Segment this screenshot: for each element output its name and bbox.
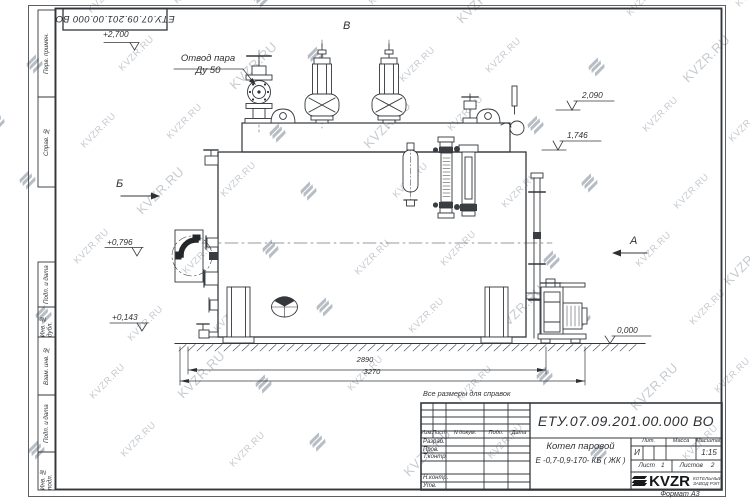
manhole: [272, 296, 298, 317]
elevation-label-1746: 1,746: [567, 131, 588, 139]
frame-cell-inv-podl: Инв. № подл.: [38, 452, 55, 490]
frame-cell-inv-dubl: Инв. № дубл.: [38, 307, 55, 337]
manometer-siphon: [501, 86, 524, 135]
titleblock-col-list: Лист: [433, 430, 446, 438]
elevation-label-2090: 2,090: [582, 91, 603, 99]
view-label-v: В: [343, 21, 350, 32]
top-fitting: [462, 94, 478, 123]
safety-valve-2: [372, 40, 406, 128]
titleblock-lit-header: Лит.: [631, 438, 666, 446]
elevation-label-0143: +0,143: [112, 313, 138, 321]
stamp-doc-number: ЕТУ.07.09.201.00.000 ВО: [63, 8, 167, 29]
dimension-label-2890: 2890: [345, 356, 385, 364]
titleblock-product-title: Котел паровой: [532, 440, 629, 454]
dimension-3270: [180, 347, 585, 385]
kvzr-logo-icon: [633, 475, 646, 488]
kvzr-logo-subtext: КОТЕЛЬНЫЙ ЗАВОД РЭП: [693, 476, 722, 487]
view-arrows: [121, 193, 647, 257]
kvzr-logo: KVZR КОТЕЛЬНЫЙ ЗАВОД РЭП: [633, 472, 722, 490]
safety-valve-1: [305, 40, 339, 128]
format-note: Формат А3: [640, 490, 720, 498]
feed-pump: [526, 279, 587, 343]
titleblock-scale-header: Масштаб: [696, 438, 722, 446]
titleblock-product-model: Е -0,7-0,9-170- КБ ( ЖК ): [530, 455, 631, 467]
frame-cell-podp-data-2: Подп. и дата: [38, 395, 55, 452]
frame-cell-sprav-no: Справ. №: [38, 97, 55, 187]
titleblock-sheet-cell: Лист 1: [631, 460, 672, 472]
steam-outlet-label-line2: Ду 50: [184, 66, 232, 76]
view-label-a: А: [630, 236, 637, 247]
titleblock-scale-value: 1:15: [696, 446, 722, 460]
titleblock-mass-header: Масса: [666, 438, 696, 446]
frame-cell-vzam-inv: Взам. инв. №: [38, 337, 55, 395]
elevation-label-0796: +0,796: [107, 238, 133, 246]
sheets-label: Листов: [680, 463, 703, 469]
titleblock-doc-number: ЕТУ.07.09.201.00.000 ВО: [530, 403, 722, 438]
titleblock-col-podp: Подп.: [484, 430, 508, 438]
support-leg-left: [223, 287, 254, 343]
support-leg-right: [481, 287, 512, 343]
titleblock-col-docnum: N докум.: [446, 430, 484, 438]
titleblock-row-utv: Утв.: [421, 482, 448, 490]
elevation-label-2700: +2,700: [103, 30, 129, 38]
steam-outlet-valve: [245, 50, 273, 132]
titleblock-lit-value: И: [631, 446, 643, 460]
titleblock-row-prov: Пров.: [421, 446, 448, 453]
kvzr-logo-text: KVZR: [649, 473, 690, 490]
separator-vessel: [403, 143, 418, 206]
titleblock-row-tkontr: Т.контр.: [421, 453, 448, 461]
steam-outlet-label-line1: Отвод пара: [170, 54, 246, 64]
water-level-gauge-1: [433, 137, 454, 218]
view-label-b: Б: [116, 179, 123, 190]
ground-line: [175, 344, 645, 352]
titleblock-row-nkontr: Н.контр.: [421, 474, 448, 482]
dimension-label-3270: 3270: [352, 368, 392, 376]
water-level-gauge-2: [454, 145, 478, 216]
sheet-value: 1: [661, 463, 665, 469]
elevation-label-0000: 0,000: [617, 326, 638, 334]
sheets-value: 2: [711, 463, 715, 469]
frame-cell-podp-data-1: Подп. и дата: [38, 262, 55, 307]
titleblock-col-data: Дата: [508, 430, 530, 438]
elevation-marks: [104, 43, 651, 344]
boiler-body: [218, 152, 526, 337]
sheet-label: Лист: [638, 463, 654, 469]
titleblock-row-razrab: Разраб.: [421, 438, 448, 446]
left-wall-fittings: [197, 150, 218, 338]
reference-note: Все размеры для справок: [423, 390, 510, 397]
titleblock-sheets-cell: Листов 2: [672, 460, 722, 472]
frame-cell-perv-primen: Перв. примен.: [38, 10, 55, 97]
drawing-sheet: KVZR.RUKVZR.RUKVZR.RUKVZR.RUKVZR.RUKVZR.…: [0, 0, 750, 500]
